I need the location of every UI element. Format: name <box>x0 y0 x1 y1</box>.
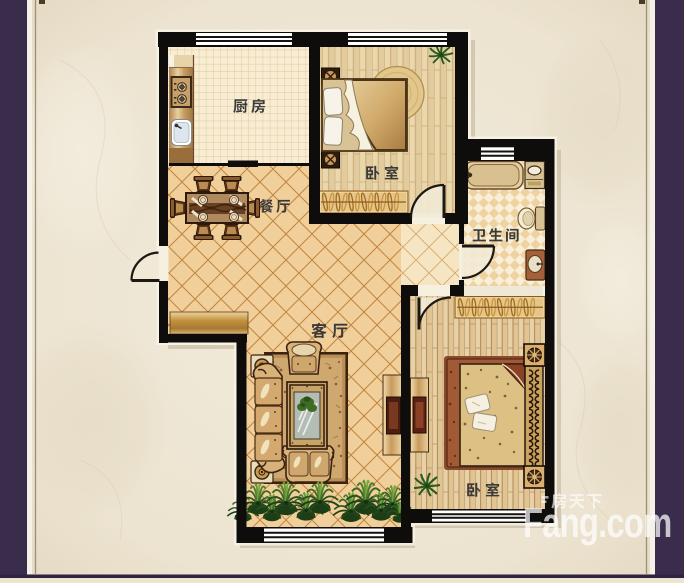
svg-text:Fang.com: Fang.com <box>523 499 671 546</box>
